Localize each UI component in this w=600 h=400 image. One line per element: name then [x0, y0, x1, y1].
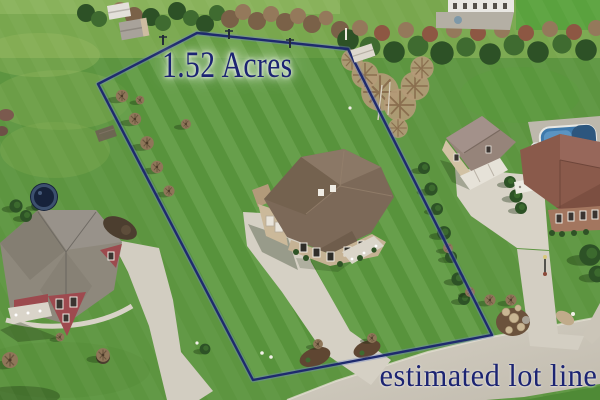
aerial-photo-canvas: [0, 0, 600, 400]
aerial-photo: 1.52 Acres estimated lot line: [0, 0, 600, 400]
acreage-label: 1.52 Acres: [162, 47, 293, 84]
lot-line-disclaimer-label: estimated lot line: [379, 359, 597, 391]
corner-pole: [345, 28, 347, 40]
trampoline: [30, 183, 58, 211]
